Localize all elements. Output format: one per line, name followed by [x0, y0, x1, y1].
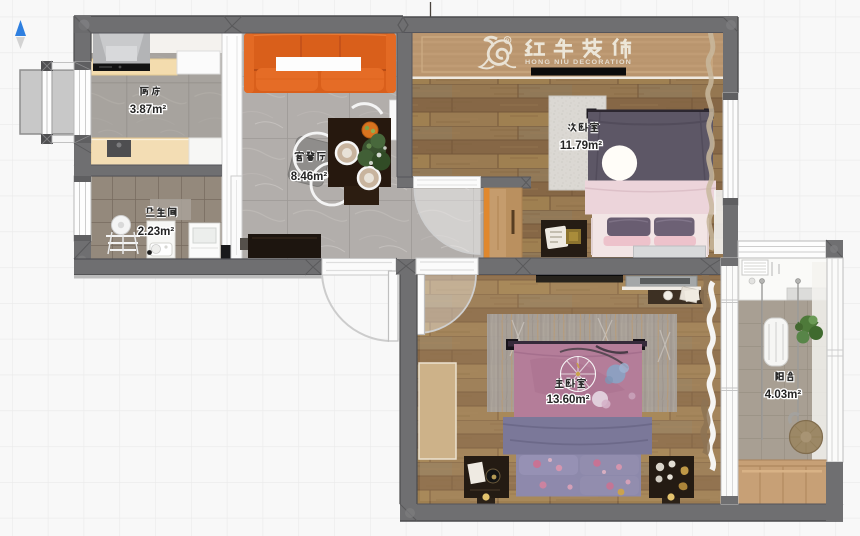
svg-text:8.46m²: 8.46m²	[291, 171, 328, 183]
svg-text:11.79m²: 11.79m²	[560, 140, 602, 152]
svg-text:4.03m²: 4.03m²	[765, 389, 802, 401]
svg-text:R: R	[506, 38, 510, 44]
svg-text:HONG NIU DECORATION: HONG NIU DECORATION	[525, 59, 632, 66]
svg-text:2.23m²: 2.23m²	[138, 226, 175, 238]
svg-text:3.87m²: 3.87m²	[130, 104, 167, 116]
svg-text:13.60m²: 13.60m²	[547, 394, 590, 406]
